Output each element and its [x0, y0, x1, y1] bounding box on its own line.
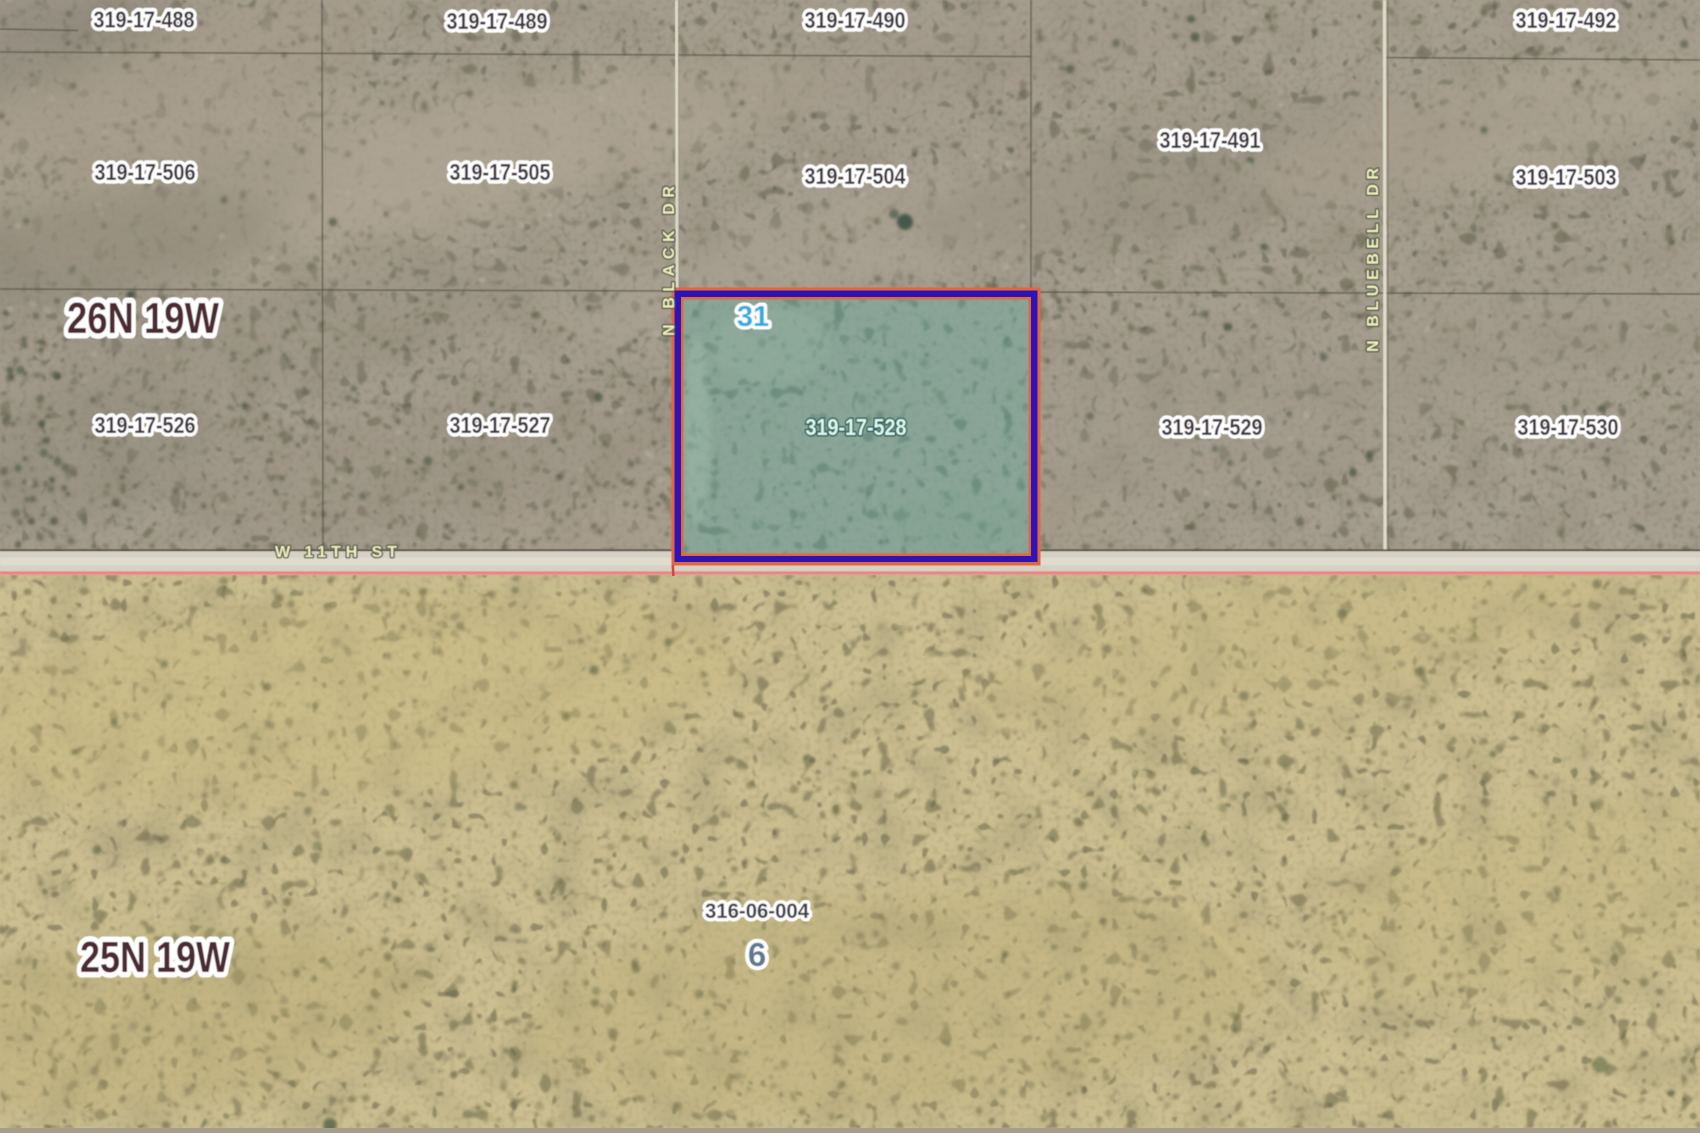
svg-text:25N 19W: 25N 19W — [80, 933, 230, 982]
svg-text:319-17-505: 319-17-505 — [450, 159, 551, 185]
svg-text:319-17-491: 319-17-491 — [1160, 127, 1261, 153]
svg-text:319-17-528: 319-17-528 — [806, 414, 907, 440]
svg-text:6: 6 — [748, 936, 766, 973]
svg-text:26N 19W: 26N 19W — [67, 294, 219, 343]
svg-text:319-17-526: 319-17-526 — [95, 412, 196, 438]
svg-text:319-17-506: 319-17-506 — [95, 159, 196, 185]
svg-text:319-17-489: 319-17-489 — [447, 8, 548, 34]
svg-text:319-17-490: 319-17-490 — [805, 7, 906, 33]
svg-text:319-17-503: 319-17-503 — [1516, 164, 1617, 190]
svg-text:319-17-488: 319-17-488 — [94, 7, 195, 33]
svg-text:N BLUEBELL DR: N BLUEBELL DR — [1365, 168, 1382, 352]
svg-text:319-17-530: 319-17-530 — [1518, 414, 1619, 440]
svg-text:319-17-492: 319-17-492 — [1516, 7, 1617, 33]
svg-text:319-17-504: 319-17-504 — [805, 163, 906, 189]
svg-text:319-17-529: 319-17-529 — [1162, 414, 1263, 440]
svg-text:316-06-004: 316-06-004 — [705, 900, 809, 923]
svg-text:31: 31 — [737, 301, 769, 333]
svg-text:319-17-527: 319-17-527 — [450, 412, 551, 438]
